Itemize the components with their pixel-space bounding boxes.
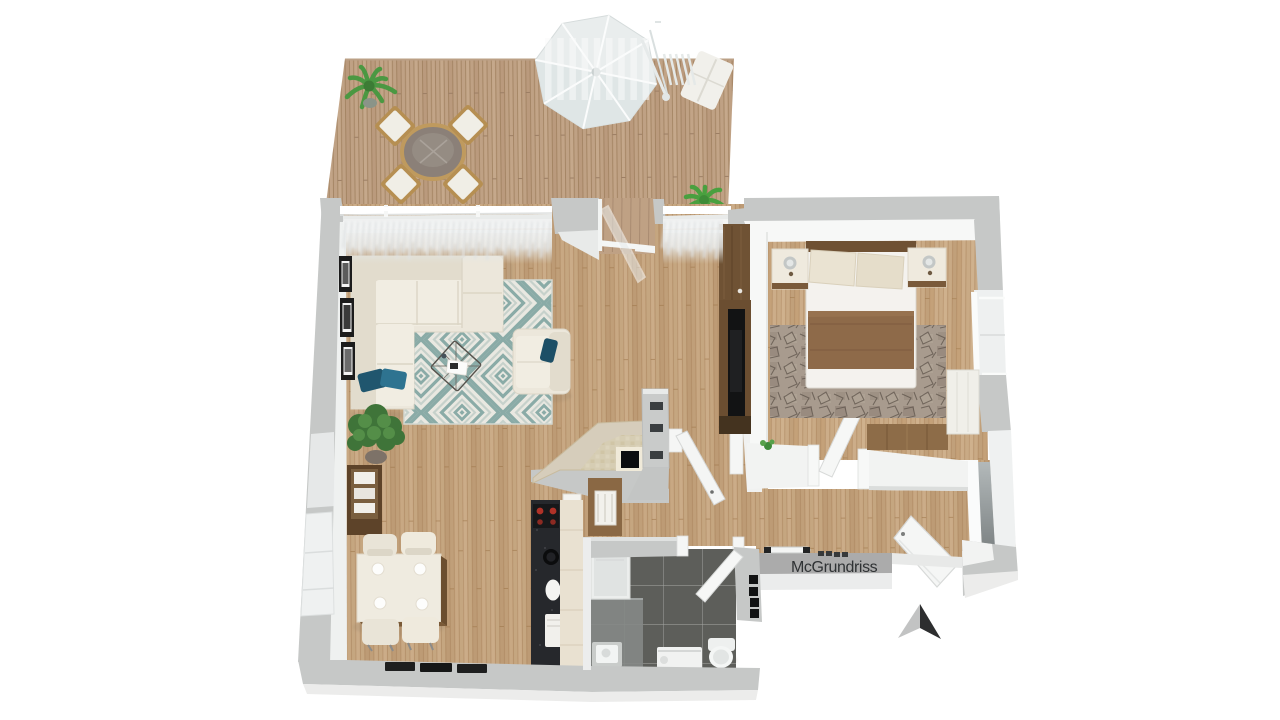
- svg-text:McGrundriss: McGrundriss: [791, 559, 878, 576]
